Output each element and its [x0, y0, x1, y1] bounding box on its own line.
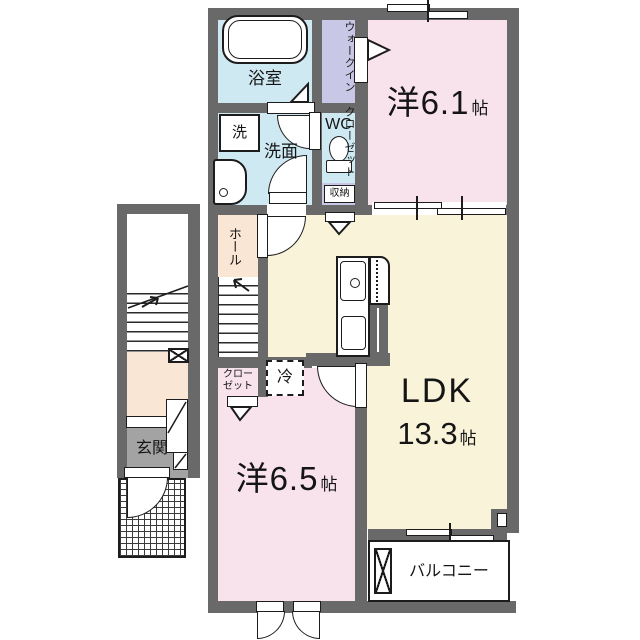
washroom-door-leaf	[269, 192, 307, 204]
sliding-door-panel	[437, 208, 506, 215]
window-panel	[387, 4, 430, 12]
washroom-doorway	[267, 204, 306, 216]
stairs-up-arrow-icon	[139, 293, 163, 311]
floor-plan: 洗 冷	[0, 0, 640, 640]
kitchen-counter-dotted-line	[376, 260, 378, 302]
wall	[208, 8, 218, 613]
ldk-label: LDK	[367, 372, 507, 412]
closet-label: クローゼット	[218, 366, 258, 396]
fridge-box: 冷	[266, 360, 304, 396]
hall-label: ホール	[224, 217, 244, 275]
pipe-space-box	[497, 513, 507, 527]
wic-open-door-icon	[367, 39, 391, 63]
wall	[355, 407, 367, 601]
sliding-door-panel	[374, 202, 442, 209]
storage-label-box: 収納	[324, 185, 355, 203]
sliding-door-tick	[416, 196, 418, 220]
pipe-space-icon	[168, 348, 189, 363]
double-door-arc	[292, 611, 320, 639]
closet-folding-door-icon	[230, 406, 252, 422]
window-panel	[406, 529, 452, 536]
bathroom-label: 浴室	[218, 66, 312, 92]
vanity-faucet-icon	[219, 188, 228, 197]
bedroom2-label: 洋6.5帖	[218, 462, 355, 508]
washroom-label: 洗面	[250, 141, 312, 163]
ldk-size-label: 13.3帖	[367, 418, 507, 460]
wc-label: WC	[322, 113, 355, 138]
stair-tower-interior	[127, 214, 188, 285]
bathtub-inner	[228, 20, 302, 59]
vanity-sink	[213, 159, 247, 205]
wic-door-leaf	[354, 37, 368, 83]
balcony-label: バルコニー	[394, 561, 504, 583]
wall	[208, 601, 516, 613]
wall	[188, 204, 200, 478]
kitchen-wall-line	[377, 308, 379, 352]
bedroom2-door-leaf	[355, 363, 367, 408]
storage-folding-door-icon	[328, 221, 351, 236]
wall	[117, 204, 127, 478]
kitchen-faucet-icon	[350, 278, 360, 288]
balcony-hatch-icon	[374, 548, 392, 594]
sliding-door-tick	[461, 196, 463, 220]
wic-label: ウォークイン クローゼット	[324, 21, 354, 101]
kitchen-stove	[341, 316, 366, 350]
stairs-up-arrow-icon	[227, 276, 253, 294]
storage-label: 収納	[330, 189, 350, 200]
washer-label: 洗	[232, 125, 247, 141]
window-panel	[427, 11, 468, 19]
fridge-label: 冷	[277, 370, 293, 387]
wall	[507, 8, 519, 532]
kitchen-counter-end	[369, 256, 390, 305]
bedroom1-label: 洋6.1帖	[368, 86, 507, 132]
window-tick	[427, 0, 429, 22]
entrance-label: 玄関	[125, 438, 179, 460]
double-door-arc	[257, 611, 285, 639]
